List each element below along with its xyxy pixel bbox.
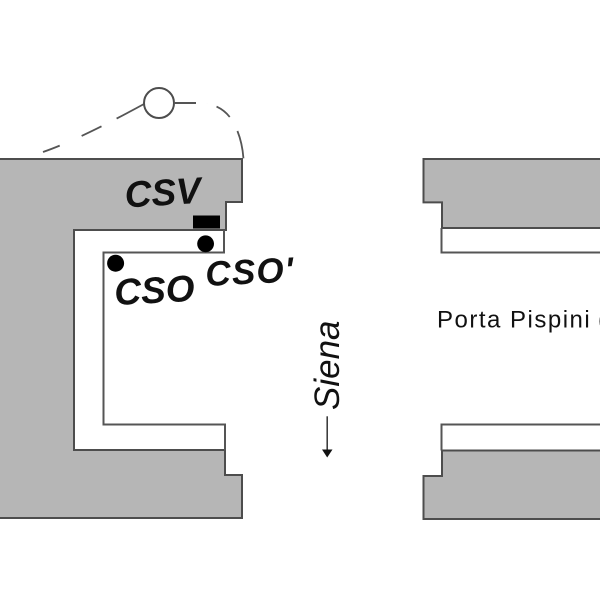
svg-text:Porta Pispini: Porta Pispini [437,307,591,334]
svg-text:CSV: CSV [123,170,205,216]
svg-text:Siena: Siena [308,320,347,410]
svg-text:CSO': CSO' [204,250,295,294]
svg-text:CSO: CSO [113,268,195,313]
